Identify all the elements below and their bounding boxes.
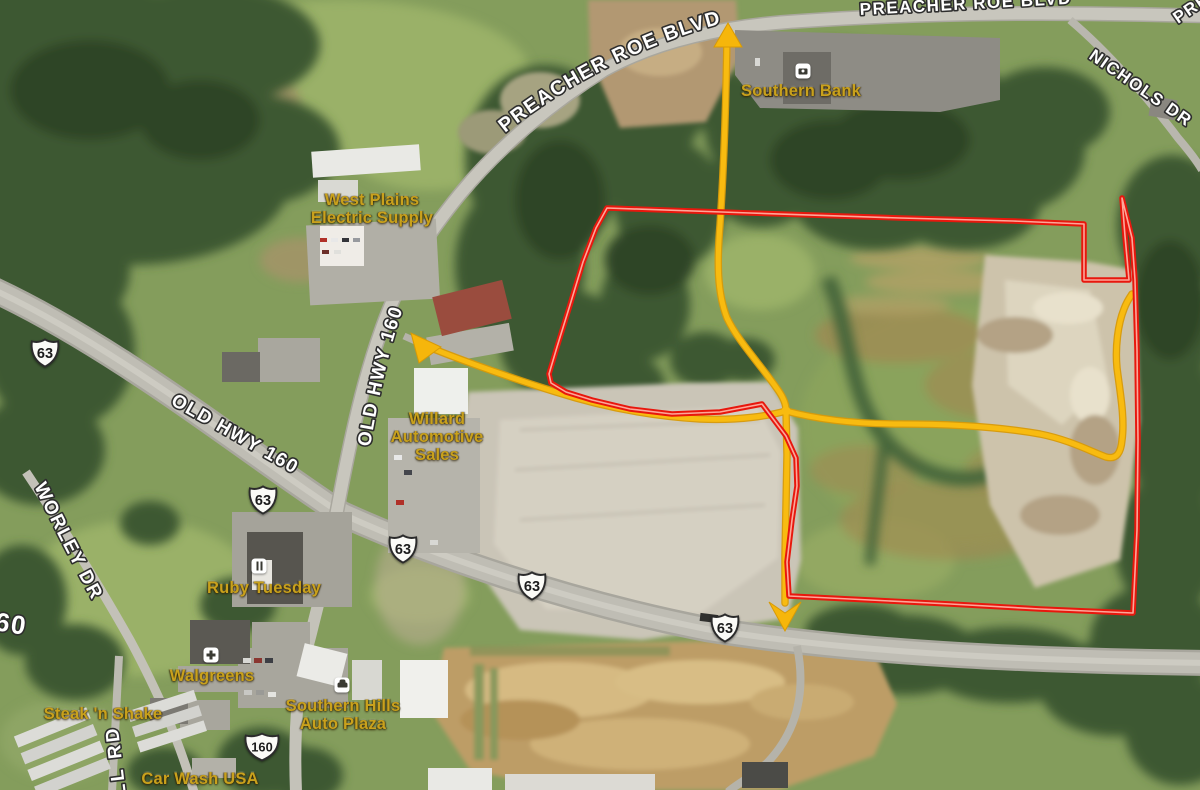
route-arrow-west	[411, 333, 441, 363]
property-boundary-core	[549, 198, 1138, 613]
road-label-preacher-roe-north: PREACHER ROE BLVD	[859, 0, 1072, 19]
place-name: Willard	[391, 410, 484, 428]
place-label-southern-hills-auto-plaza: Southern Hills Auto Plaza	[286, 697, 401, 733]
place-name: Southern Bank	[741, 82, 861, 100]
us-63-shield: 63	[516, 571, 549, 602]
road-label-160-partial: 60	[0, 606, 29, 641]
us-63-shield: 63	[29, 338, 62, 369]
svg-text:63: 63	[717, 621, 733, 637]
place-label-walgreens: Walgreens	[170, 667, 255, 685]
us-63-shield: 63	[709, 613, 742, 644]
us-63-shield: 63	[387, 534, 420, 565]
place-name: Electric Supply	[311, 209, 433, 227]
route-east-spur	[786, 294, 1132, 458]
store-icon	[204, 648, 219, 663]
road-label-worley-dr: WORLEY DR	[30, 479, 107, 603]
place-label-southern-bank: Southern Bank	[741, 82, 861, 100]
restaurant-icon	[252, 559, 267, 574]
route-junction	[782, 407, 791, 416]
svg-text:63: 63	[395, 542, 411, 558]
place-name: Southern Hills	[286, 697, 401, 715]
us-63-shield: 63	[247, 485, 280, 516]
bank-icon	[796, 64, 811, 79]
place-name: Car Wash USA	[141, 770, 258, 788]
svg-text:63: 63	[255, 493, 271, 509]
place-label-west-plains-electric: West Plains Electric Supply	[311, 191, 433, 227]
road-label-ll-rd: LL RD	[102, 724, 131, 790]
place-label-steak-n-shake: Steak 'n Shake	[44, 705, 163, 723]
place-name: Sales	[391, 446, 484, 464]
place-name: Automotive	[391, 428, 484, 446]
road-label-preacher-roe-west: PREACHER ROE BLVD	[494, 7, 723, 137]
us-160-shield: 160	[242, 732, 282, 763]
place-name: Ruby Tuesday	[207, 579, 321, 597]
place-label-willard-automotive: Willard Automotive Sales	[391, 410, 484, 464]
svg-text:63: 63	[37, 346, 53, 362]
place-name: West Plains	[311, 191, 433, 209]
svg-text:63: 63	[524, 579, 540, 595]
place-name: Auto Plaza	[286, 715, 401, 733]
place-name: Steak 'n Shake	[44, 705, 163, 723]
svg-text:160: 160	[251, 739, 272, 754]
place-label-car-wash-usa: Car Wash USA	[141, 770, 258, 788]
road-label-old-hwy-160-diagonal: OLD HWY 160	[168, 390, 303, 479]
property-boundary	[549, 198, 1138, 613]
satellite-map-view[interactable]: PREACHER ROE BLVD PREACHER ROE BLVD PREA…	[0, 0, 1200, 790]
car-icon	[335, 678, 350, 693]
place-label-ruby-tuesday: Ruby Tuesday	[207, 579, 321, 597]
place-name: Walgreens	[170, 667, 255, 685]
property-boundary-outline	[549, 198, 1138, 613]
road-label-nichols-dr: NICHOLS DR	[1086, 46, 1196, 131]
